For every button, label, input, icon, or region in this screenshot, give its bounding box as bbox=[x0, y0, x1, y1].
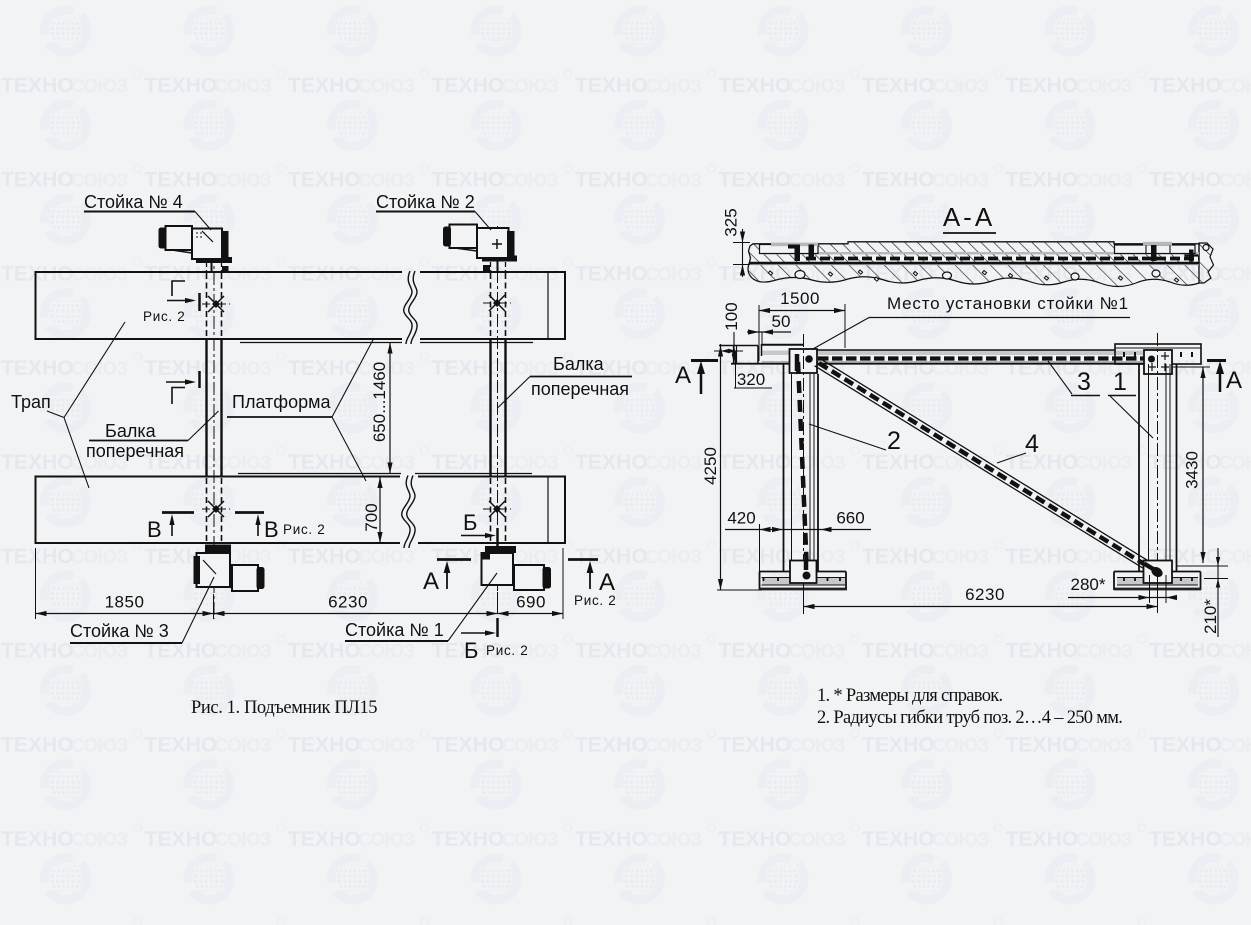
svg-text:280*: 280* bbox=[1071, 575, 1106, 594]
svg-text:А: А bbox=[599, 569, 615, 596]
svg-text:1500: 1500 bbox=[780, 289, 820, 308]
svg-text:Рис. 2: Рис. 2 bbox=[283, 522, 326, 537]
svg-text:2: 2 bbox=[887, 427, 901, 455]
svg-text:320: 320 bbox=[737, 370, 765, 389]
svg-text:100: 100 bbox=[722, 302, 741, 330]
svg-text:1: 1 bbox=[1113, 368, 1127, 396]
svg-text:210*: 210* bbox=[1201, 599, 1220, 634]
svg-text:Рис. 2: Рис. 2 bbox=[574, 593, 617, 608]
svg-text:4250: 4250 bbox=[701, 447, 720, 485]
svg-text:1850: 1850 bbox=[105, 593, 145, 612]
svg-text:А-А: А-А bbox=[943, 202, 995, 232]
svg-text:Платформа: Платформа bbox=[232, 392, 332, 412]
svg-text:Балка: Балка bbox=[105, 421, 157, 441]
svg-text:Рис. 2: Рис. 2 bbox=[143, 309, 186, 324]
svg-text:Стойка № 2: Стойка № 2 bbox=[376, 192, 475, 212]
svg-text:660: 660 bbox=[836, 509, 864, 528]
svg-text:690: 690 bbox=[516, 593, 546, 612]
svg-text:А: А bbox=[423, 568, 439, 595]
svg-text:поперечная: поперечная bbox=[531, 379, 629, 399]
svg-text:700: 700 bbox=[362, 503, 381, 531]
svg-text:3430: 3430 bbox=[1183, 451, 1202, 489]
svg-text:Место установки стойки №1: Место установки стойки №1 bbox=[887, 294, 1129, 313]
svg-text:В: В bbox=[147, 517, 162, 542]
svg-text:420: 420 bbox=[727, 509, 755, 528]
svg-text:650...1460: 650...1460 bbox=[370, 362, 389, 442]
svg-text:Стойка № 4: Стойка № 4 bbox=[84, 192, 183, 212]
svg-text:Балка: Балка bbox=[553, 354, 605, 374]
svg-text:Трап: Трап bbox=[11, 392, 51, 412]
svg-text:А: А bbox=[675, 362, 691, 389]
svg-text:Стойка № 1: Стойка № 1 bbox=[345, 620, 444, 640]
svg-text:Рис. 2: Рис. 2 bbox=[486, 643, 529, 658]
svg-text:поперечная: поперечная bbox=[86, 441, 184, 461]
svg-text:Б: Б bbox=[464, 638, 478, 663]
svg-text:4: 4 bbox=[1025, 430, 1039, 458]
svg-text:50: 50 bbox=[772, 312, 791, 331]
svg-text:2. Радиусы гибки труб поз. 2…4: 2. Радиусы гибки труб поз. 2…4 – 250 мм. bbox=[817, 708, 1122, 728]
svg-text:А: А bbox=[1226, 367, 1242, 394]
svg-text:Рис. 1. Подъемник ПЛ15: Рис. 1. Подъемник ПЛ15 bbox=[191, 698, 377, 718]
svg-text:325: 325 bbox=[722, 208, 741, 236]
svg-text:Б: Б bbox=[463, 510, 477, 535]
svg-text:3: 3 bbox=[1077, 368, 1091, 396]
svg-text:1. * Размеры для справок.: 1. * Размеры для справок. bbox=[817, 686, 1003, 706]
svg-text:6230: 6230 bbox=[328, 593, 368, 612]
svg-text:Стойка № 3: Стойка № 3 bbox=[70, 621, 169, 641]
svg-text:6230: 6230 bbox=[965, 585, 1005, 604]
svg-text:В: В bbox=[264, 517, 279, 542]
